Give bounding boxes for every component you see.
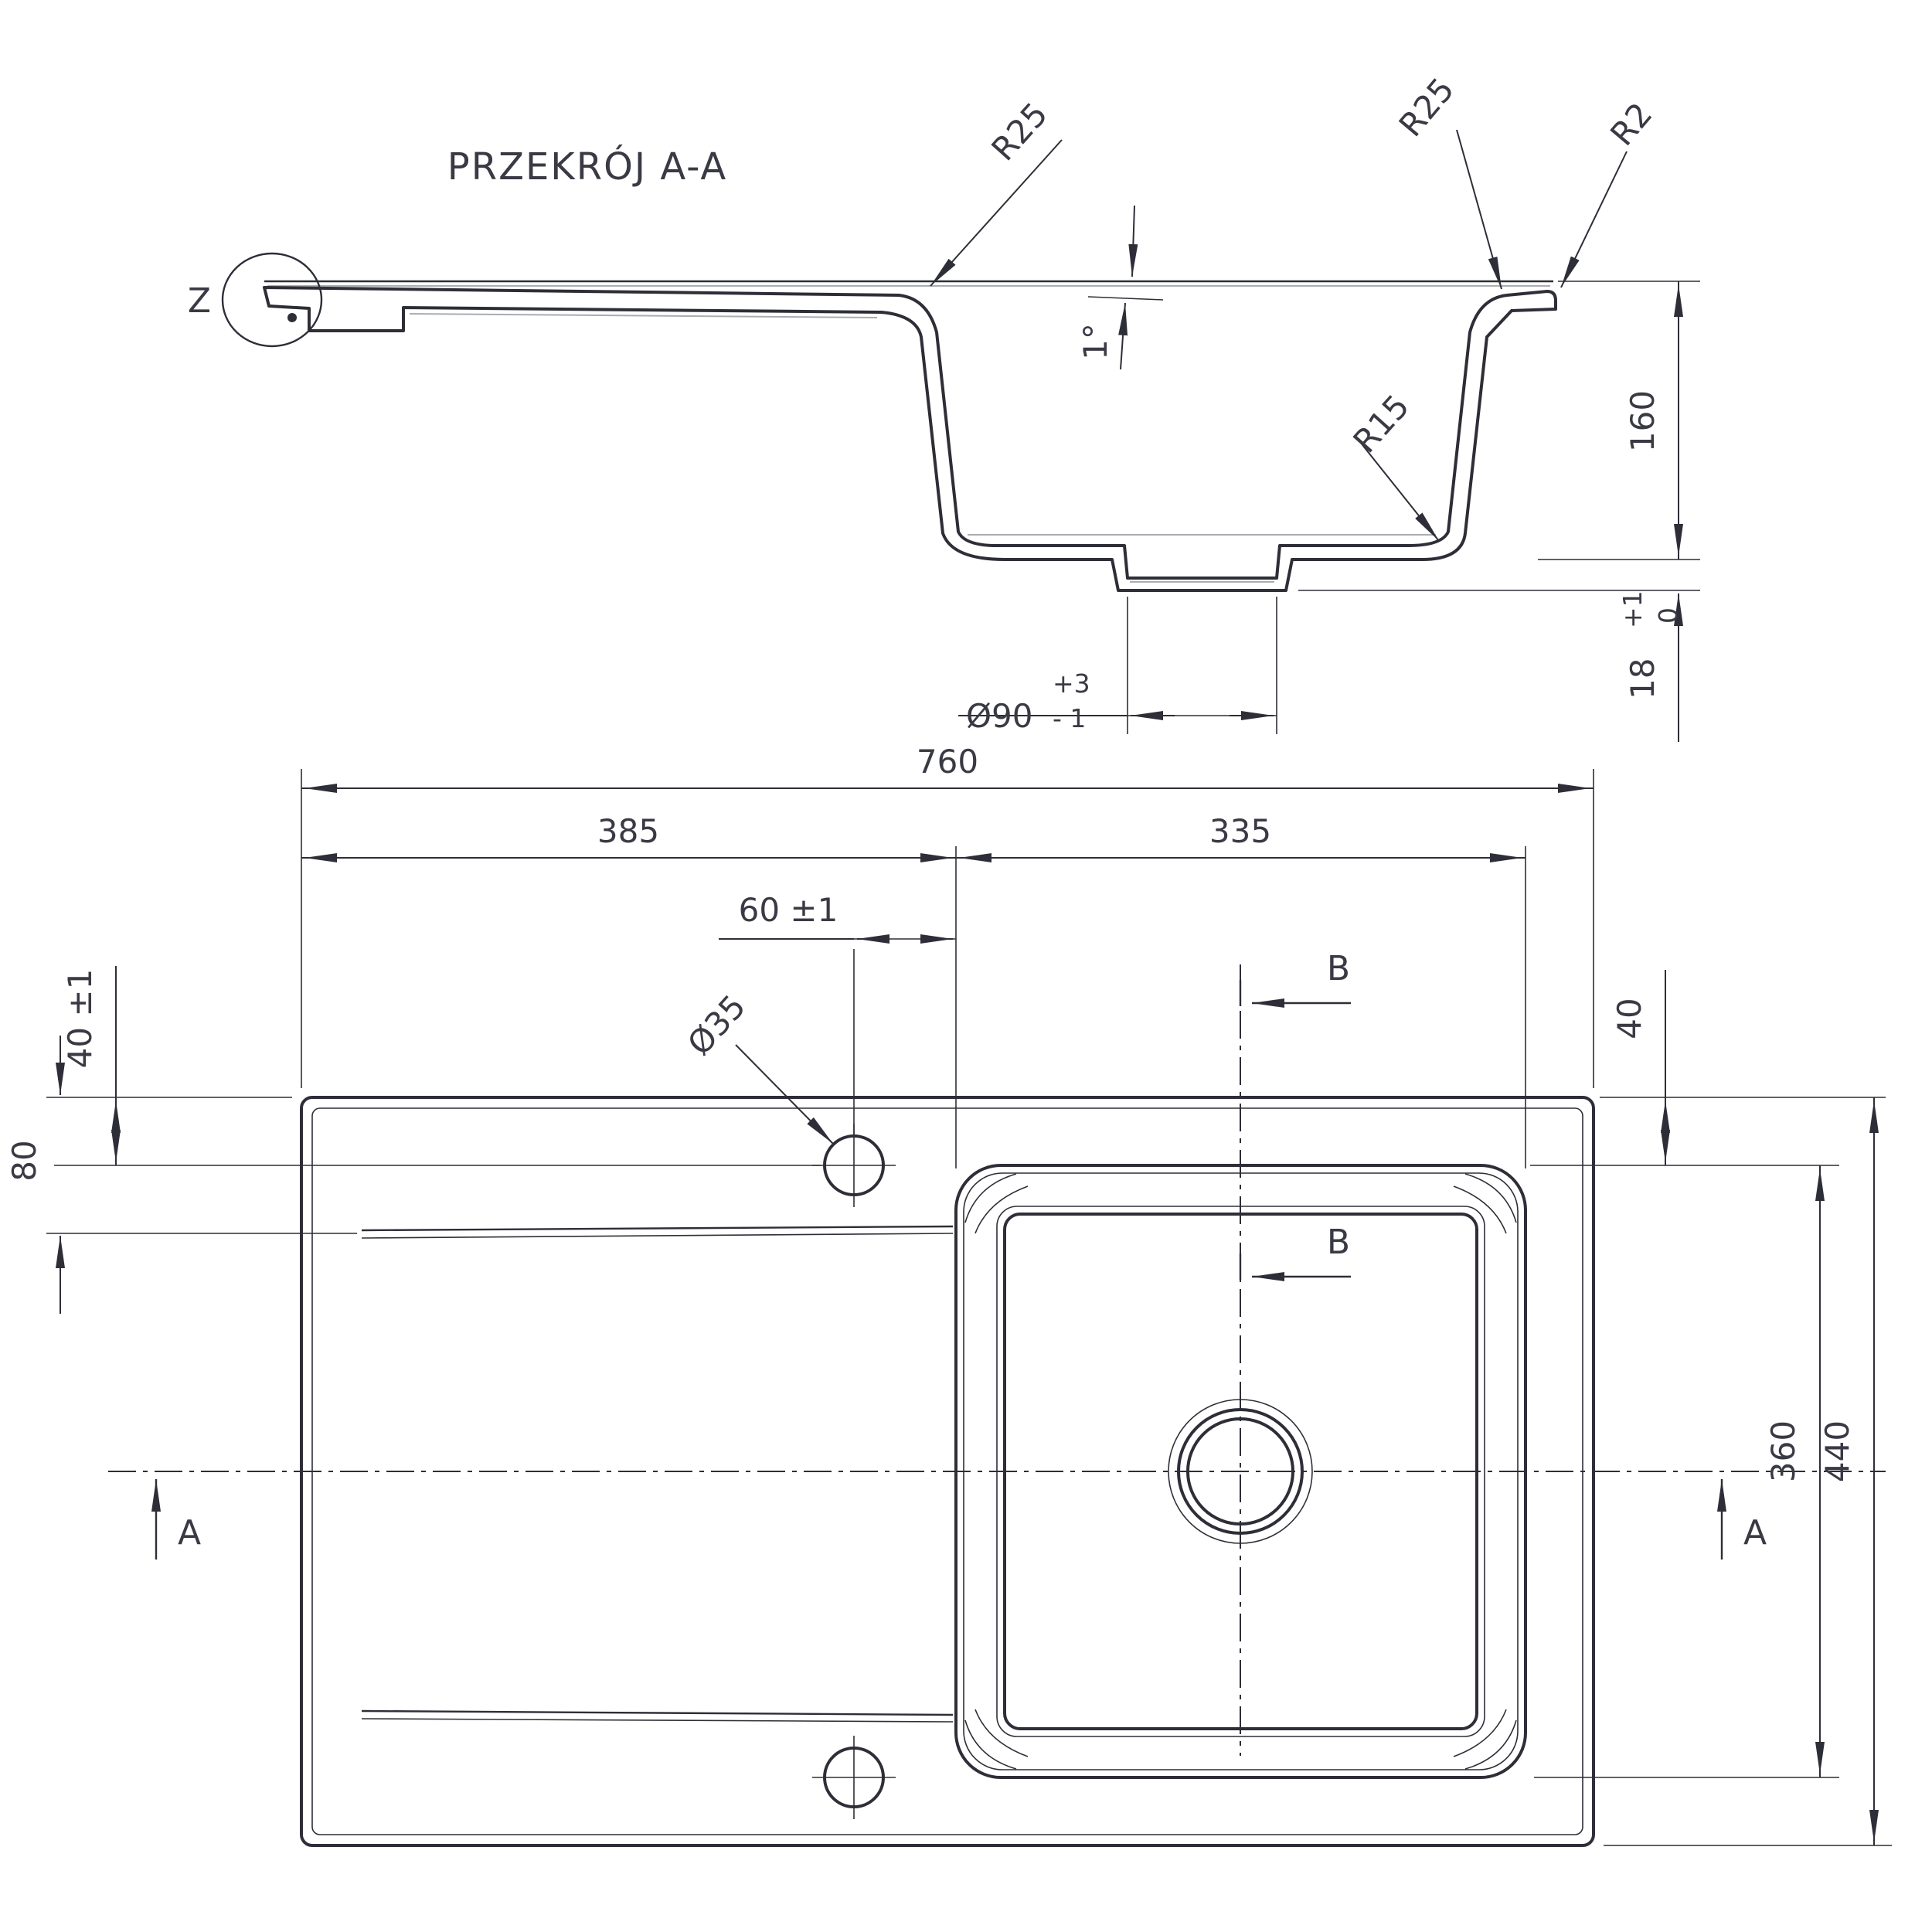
leader-r25-left: R25 xyxy=(930,95,1062,286)
drain-tol-plus: +3 xyxy=(1053,668,1090,699)
section-a-left-label: A xyxy=(178,1513,201,1553)
section-arrow-b-top: B xyxy=(1240,949,1351,1006)
section-view: PRZEKRÓJ A-A Z R25 R25 R2 xyxy=(188,70,1700,742)
r25-right-label: R25 xyxy=(1392,70,1462,144)
leader-r15: R15 xyxy=(1345,387,1439,541)
draft-angle-label: 1° xyxy=(1077,323,1114,360)
detail-z-label: Z xyxy=(188,281,211,321)
leader-r25-right: R25 xyxy=(1392,70,1502,289)
dim-depth-160: 160 xyxy=(1538,281,1700,560)
hole-offset-label: 60 ±1 xyxy=(739,891,838,929)
dim-hole-from-top-40: 40 ±1 xyxy=(46,966,821,1165)
dim-drainer-width-385: 385 xyxy=(301,812,956,1168)
dim-lip-18: 18 +1 0 xyxy=(1298,590,1700,742)
section-a-right-label: A xyxy=(1743,1513,1767,1553)
plan-view: A A B B 760 xyxy=(5,743,1892,1845)
dim-groove-from-top-80: 80 xyxy=(5,1036,357,1314)
drainboard-underside-shadow xyxy=(410,314,877,318)
technical-drawing-sink: PRZEKRÓJ A-A Z R25 R25 R2 xyxy=(0,0,1932,1932)
bowl-width-label: 335 xyxy=(1209,812,1271,850)
lip-tol-plus: +1 xyxy=(1617,590,1648,628)
leader-r2: R2 xyxy=(1561,96,1660,287)
depth-label: 160 xyxy=(1624,390,1662,452)
bowl-length-label: 360 xyxy=(1764,1420,1802,1482)
r2-label: R2 xyxy=(1603,96,1659,153)
lip-tol-zero: 0 xyxy=(1653,607,1683,624)
section-b-top-label: B xyxy=(1327,949,1350,988)
dim-overall-width-760: 760 xyxy=(301,743,1594,1088)
overall-width-label: 760 xyxy=(917,743,978,781)
drainer-grooves xyxy=(362,1226,953,1722)
section-arrow-a-left: A xyxy=(156,1479,201,1560)
section-arrow-b-bottom: B xyxy=(1240,1223,1351,1280)
r25-left-label: R25 xyxy=(984,95,1055,168)
tap-hole-bottom xyxy=(812,1736,896,1819)
groove-from-top-label: 80 xyxy=(5,1140,43,1181)
detail-z-circle xyxy=(223,253,321,346)
r15-label: R15 xyxy=(1345,387,1417,460)
drain-dia-label: Ø90 xyxy=(966,697,1033,735)
bowl-from-top-label: 40 xyxy=(1611,998,1648,1039)
drain-tol-minus: - 1 xyxy=(1053,703,1086,733)
drip-groove-dot xyxy=(287,313,297,322)
section-arrow-a-right: A xyxy=(1722,1479,1767,1560)
drainer-width-label: 385 xyxy=(597,812,659,850)
leader-hole-dia: Ø35 xyxy=(680,988,833,1144)
dim-bowl-from-top-40: 40 xyxy=(1530,970,1886,1165)
section-b-bottom-label: B xyxy=(1327,1223,1350,1262)
overall-height-label: 440 xyxy=(1818,1420,1856,1482)
dim-draft-angle: 1° xyxy=(1077,206,1163,369)
hole-from-top-label: 40 ±1 xyxy=(61,969,99,1069)
lip-label: 18 xyxy=(1624,658,1662,699)
dim-drain-dia: Ø90 +3 - 1 xyxy=(958,597,1277,735)
section-title: PRZEKRÓJ A-A xyxy=(447,145,727,189)
